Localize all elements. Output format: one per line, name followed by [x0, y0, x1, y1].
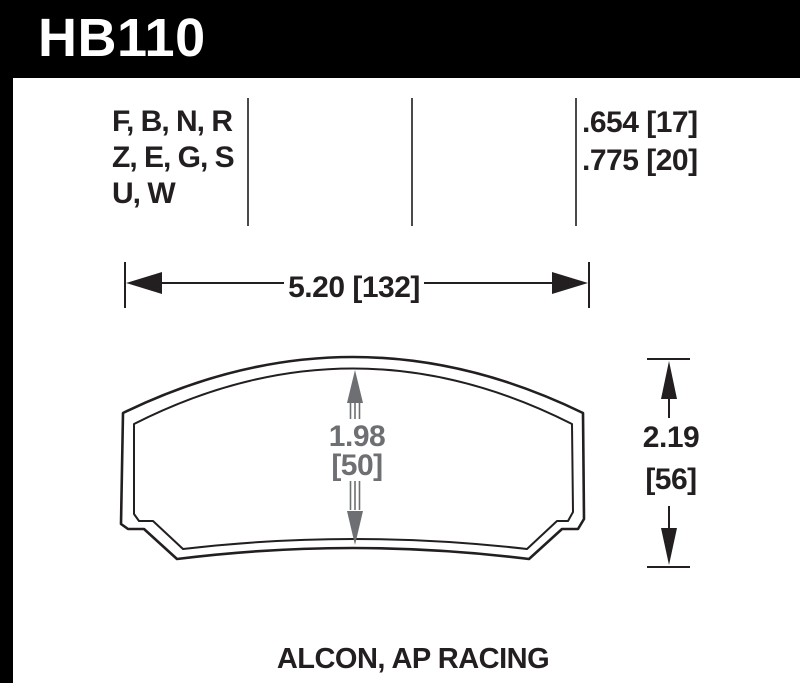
height-dim-up-arrow-icon: [661, 361, 677, 399]
height-dim-down-arrow-icon: [661, 528, 677, 565]
width-dim-right-arrow-icon: [552, 272, 588, 294]
center-dim-up-arrow-icon: [347, 370, 363, 403]
center-height-dimension: 1.98 [50]: [329, 370, 385, 545]
height-dim-mm-label: [56]: [645, 463, 696, 496]
caliper-applications-label: ALCON, AP RACING: [277, 643, 549, 676]
height-dim-value-label: 2.19: [643, 421, 699, 454]
width-dim-left-arrow-icon: [126, 272, 162, 294]
pad-technical-drawing: 5.20 [132] 1.98 [50]: [0, 0, 800, 691]
center-dim-mm-label: [50]: [331, 449, 382, 482]
width-dimension-label: 5.20 [132]: [288, 271, 420, 304]
height-dimension: 2.19 [56]: [643, 359, 699, 567]
spec-sheet-page: HB110 F, B, N, R Z, E, G, S U, W .654 [1…: [0, 0, 800, 691]
